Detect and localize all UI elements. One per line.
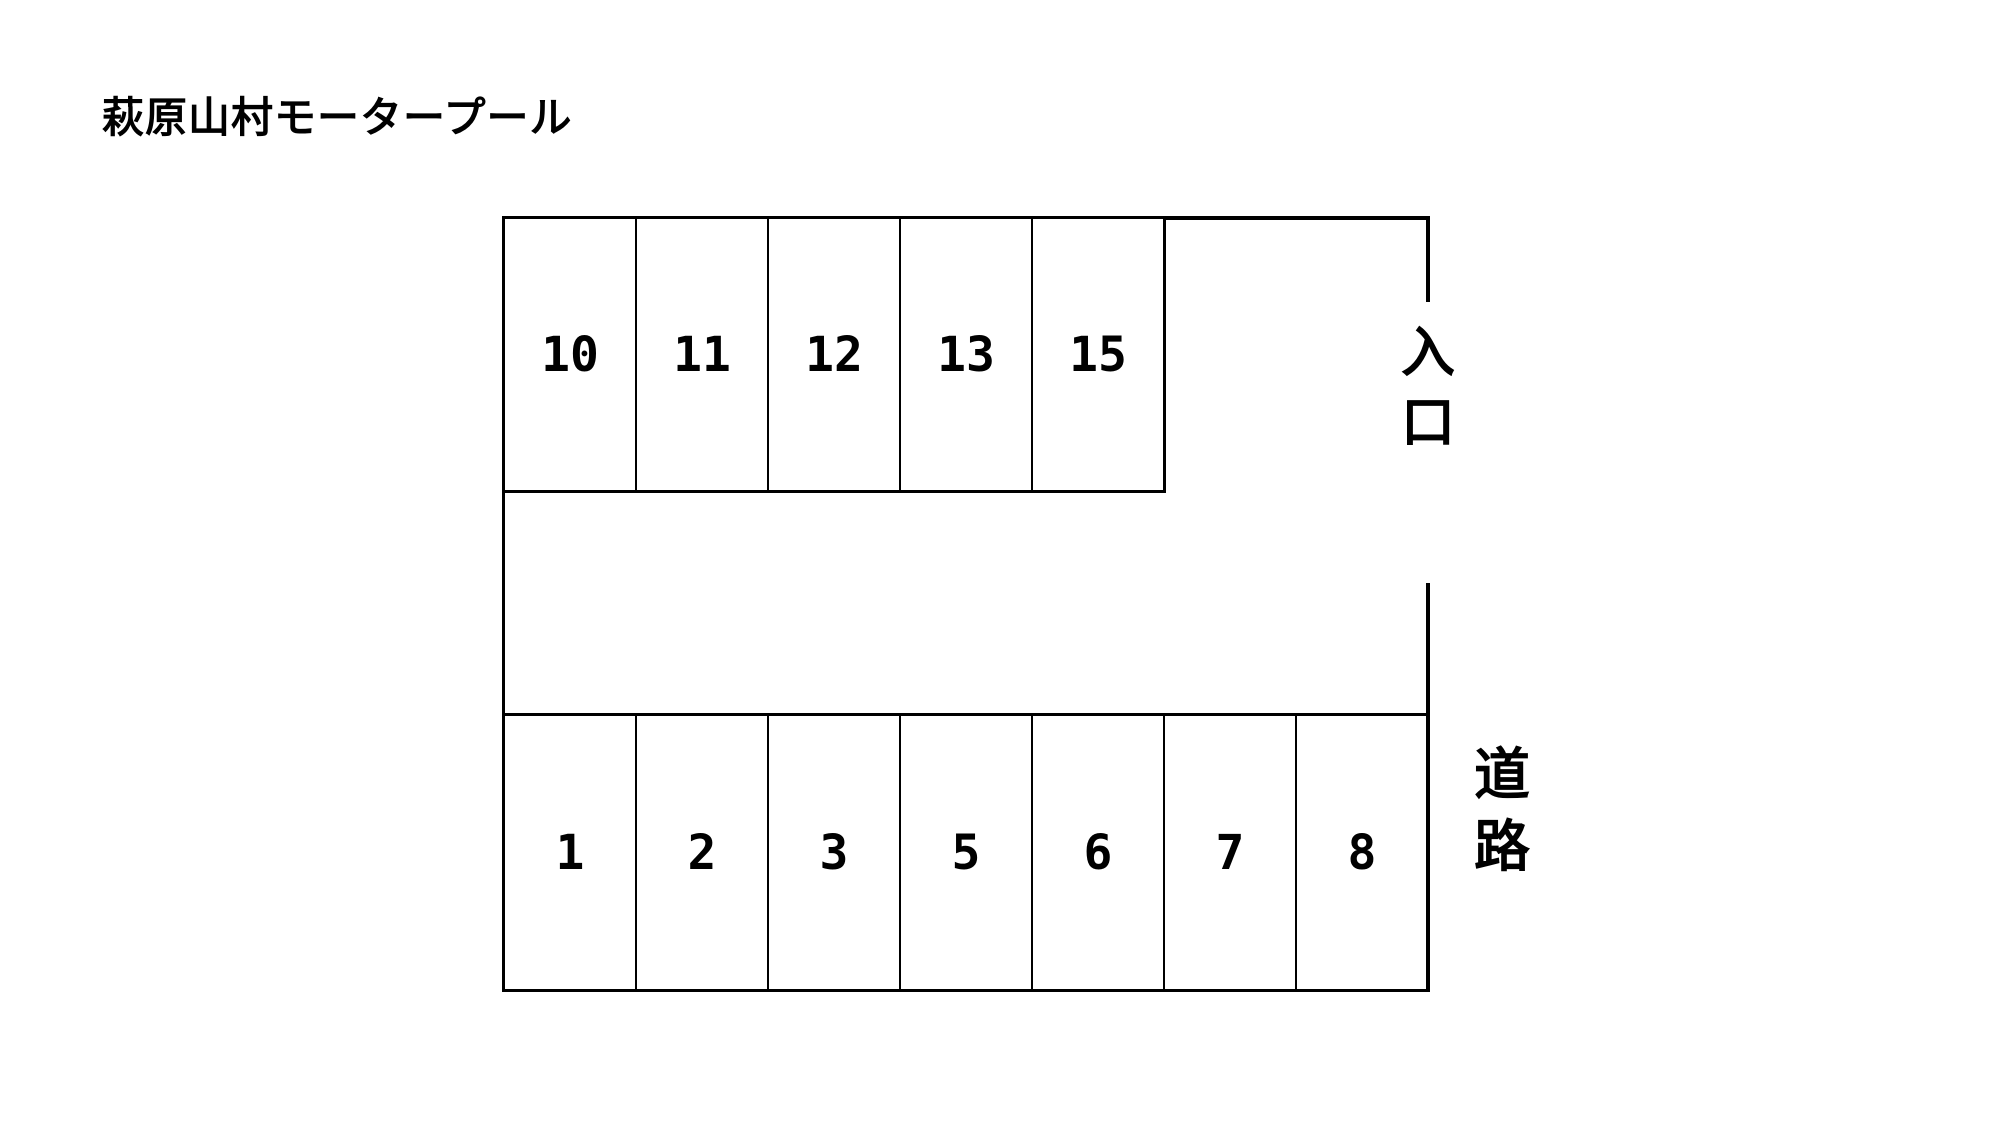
stall-8: 8 [1297, 716, 1427, 989]
stall-1-label: 1 [556, 825, 585, 881]
stall-13-label: 13 [937, 327, 995, 383]
stall-7: 7 [1165, 716, 1297, 989]
stall-5-label: 5 [952, 825, 981, 881]
stall-10-label: 10 [541, 327, 599, 383]
stall-6-label: 6 [1084, 825, 1113, 881]
stall-11: 11 [637, 219, 769, 490]
stall-10: 10 [505, 219, 637, 490]
stall-1: 1 [505, 716, 637, 989]
road-label: 道路 [1473, 740, 1531, 884]
stall-7-label: 7 [1216, 825, 1245, 881]
entrance-label: 入口 [1399, 318, 1457, 458]
stall-13: 13 [901, 219, 1033, 490]
stall-6: 6 [1033, 716, 1165, 989]
stall-15-label: 15 [1069, 327, 1127, 383]
stall-2-label: 2 [688, 825, 717, 881]
top-stall-row: 10 11 12 13 15 [502, 216, 1166, 493]
stall-12-label: 12 [805, 327, 863, 383]
bottom-stall-row: 1 2 3 5 6 7 8 [502, 713, 1430, 992]
road-side-boundary-line [1426, 583, 1430, 992]
stall-3: 3 [769, 716, 901, 989]
parking-diagram: 萩原山村モータープール 10 11 12 13 15 1 2 3 5 [0, 0, 2000, 1125]
stall-8-label: 8 [1348, 825, 1377, 881]
stall-15: 15 [1033, 219, 1163, 490]
stall-3-label: 3 [820, 825, 849, 881]
stall-11-label: 11 [673, 327, 731, 383]
stall-5: 5 [901, 716, 1033, 989]
stall-2: 2 [637, 716, 769, 989]
stall-12: 12 [769, 219, 901, 490]
entrance-top-boundary-line [1164, 216, 1430, 220]
left-boundary-line [502, 490, 505, 716]
lot-title: 萩原山村モータープール [102, 94, 572, 142]
entrance-corner-line [1426, 216, 1430, 302]
